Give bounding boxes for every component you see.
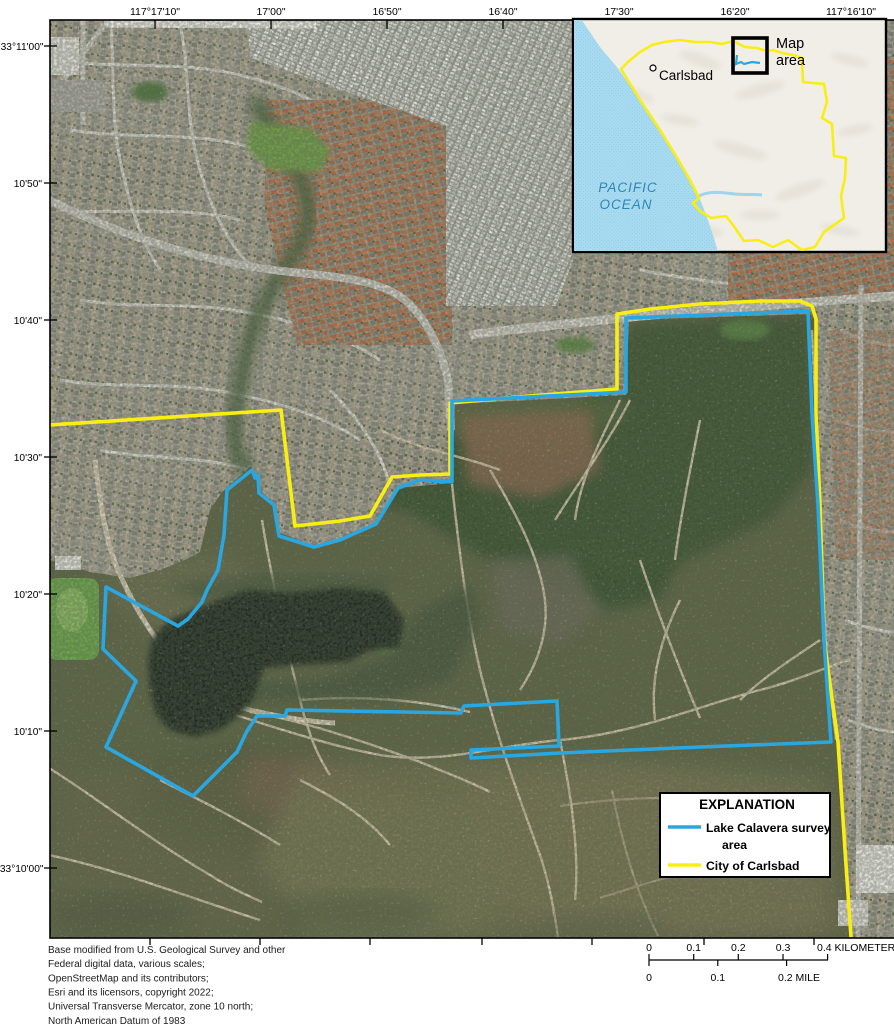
svg-text:10'10": 10'10" xyxy=(14,727,43,738)
svg-text:area: area xyxy=(776,53,806,69)
svg-text:Map: Map xyxy=(776,36,804,52)
svg-text:117°16'10": 117°16'10" xyxy=(826,6,876,18)
svg-text:0.2 MILE: 0.2 MILE xyxy=(778,972,820,984)
svg-text:16'20": 16'20" xyxy=(720,6,749,18)
svg-text:Universal Transverse Mercator,: Universal Transverse Mercator, zone 10 n… xyxy=(48,1002,253,1013)
svg-text:Carlsbad: Carlsbad xyxy=(659,68,713,83)
svg-text:OpenStreetMap and its contribu: OpenStreetMap and its contributors; xyxy=(48,973,209,984)
svg-text:117°17'10": 117°17'10" xyxy=(130,6,180,18)
svg-text:North American Datum of 1983: North American Datum of 1983 xyxy=(48,1016,186,1027)
svg-text:10'40": 10'40" xyxy=(14,316,43,327)
svg-text:Federal digital data, various: Federal digital data, various scales; xyxy=(48,959,205,970)
svg-text:33°10'00": 33°10'00" xyxy=(0,864,44,875)
svg-text:10'20": 10'20" xyxy=(14,590,43,601)
svg-text:17'00": 17'00" xyxy=(256,6,285,18)
svg-text:Esri and its licensors, copyri: Esri and its licensors, copyright 2022; xyxy=(48,988,214,999)
svg-text:Base modified from U.S. Geolog: Base modified from U.S. Geological Surve… xyxy=(48,945,286,956)
svg-text:0: 0 xyxy=(646,942,652,954)
svg-text:0.2: 0.2 xyxy=(731,942,746,954)
svg-text:16'40": 16'40" xyxy=(488,6,517,18)
svg-text:City of Carlsbad: City of Carlsbad xyxy=(706,859,799,873)
svg-text:17'30": 17'30" xyxy=(604,6,633,18)
svg-text:10'30": 10'30" xyxy=(14,453,43,464)
svg-text:EXPLANATION: EXPLANATION xyxy=(699,797,795,812)
svg-text:Lake Calavera survey: Lake Calavera survey xyxy=(706,821,831,835)
svg-text:33°11'00": 33°11'00" xyxy=(1,42,44,53)
svg-text:0.3: 0.3 xyxy=(776,942,791,954)
svg-text:OCEAN: OCEAN xyxy=(599,197,652,212)
svg-text:10'50": 10'50" xyxy=(14,179,43,190)
svg-text:0.1: 0.1 xyxy=(710,972,725,984)
svg-text:0: 0 xyxy=(646,972,652,984)
svg-text:0.4 KILOMETER: 0.4 KILOMETER xyxy=(817,942,894,954)
svg-text:area: area xyxy=(722,838,747,852)
svg-text:16'50": 16'50" xyxy=(372,6,401,18)
svg-text:0.1: 0.1 xyxy=(686,942,701,954)
svg-text:PACIFIC: PACIFIC xyxy=(598,180,657,195)
